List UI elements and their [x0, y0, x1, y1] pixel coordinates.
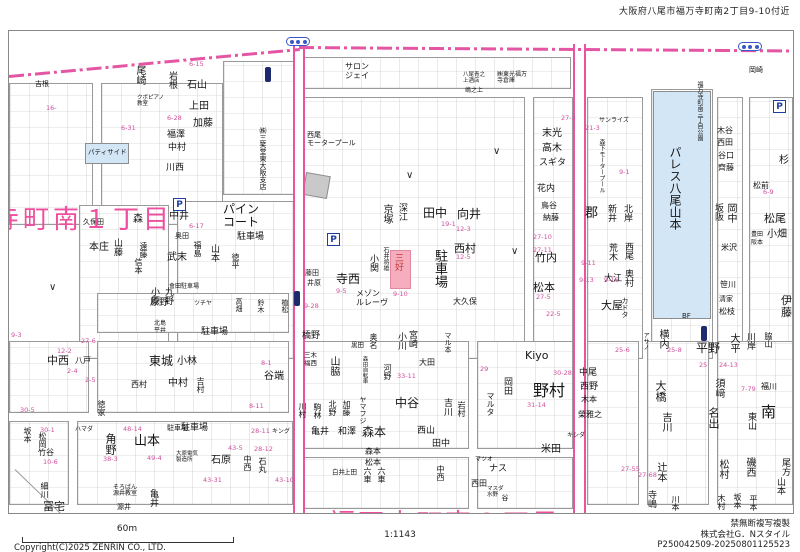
lot-number: 25 [699, 362, 707, 369]
lot-number: 2-5 [85, 377, 96, 384]
basement-floor-label: BF [682, 313, 691, 320]
building-label: 岩根 [167, 71, 176, 89]
building-label: 藤田 [305, 270, 319, 278]
one-way-arrow-icon: ∨ [49, 283, 56, 293]
building-label: 八戸 [75, 357, 91, 366]
signpost-icon [265, 67, 271, 82]
building-label: 大屋 [601, 300, 623, 312]
lot-number: 30-5 [20, 407, 35, 414]
building-label: 竹谷 [38, 449, 54, 458]
building-label: 木谷 [717, 127, 733, 136]
building-label: 大久保 [453, 298, 477, 307]
lot-number: 12-2 [57, 348, 72, 355]
building-label: ヤマフジ [359, 396, 366, 424]
building-label: マルタ [486, 392, 494, 416]
lot-number: 9-28 [304, 303, 319, 310]
building-label: 冨宅 [43, 501, 65, 513]
one-way-arrow-icon: ∨ [511, 247, 518, 257]
district-name-label: 寺町南１丁目 [8, 207, 173, 233]
building-label: 坂阪 [713, 203, 722, 221]
building-label: 遠藤 [139, 242, 147, 258]
building-label: 米田 [541, 445, 561, 456]
building-label: 西田 [717, 139, 733, 148]
building-label: ツチヤ [194, 301, 212, 307]
publisher-block: 禁無断複写複製 株式会社G．Nスタイル P250042509-202508011… [657, 519, 790, 551]
building-label: 松村 [717, 459, 727, 479]
building-label: 山脇 [328, 356, 338, 376]
building-label: 田中 [423, 207, 447, 220]
building-label: 清家 [719, 296, 733, 304]
building-label: 加藤 [193, 119, 213, 130]
building-label: 谷口 [718, 152, 734, 161]
building-label: 上田 [189, 102, 209, 113]
building-label: 笹川 [720, 281, 736, 290]
building-label: マツオ [475, 457, 493, 463]
lot-number: 9-11 [581, 260, 596, 267]
building-label: 平本 [749, 495, 757, 511]
building-label: 本庄 [89, 243, 109, 254]
lot-number: 30-1 [40, 427, 55, 434]
building-label: 中村 [168, 144, 186, 154]
building-label: キング [272, 429, 290, 435]
lot-number: 38-3 [103, 456, 118, 463]
building-label: 植松 [281, 299, 288, 313]
city-block [587, 97, 643, 359]
building-label: 加藤 [342, 400, 350, 416]
lot-number: 8-1 [261, 360, 272, 367]
building-label: 大原電気 製造所 [176, 452, 198, 464]
lot-number: 28-11 [251, 428, 270, 435]
building-label: 駐車場 [237, 233, 264, 243]
lot-number: 8-11 [249, 403, 264, 410]
lot-number: 22-5 [546, 311, 561, 318]
building-label: 駐車場 [167, 425, 188, 433]
building-label: 西山 [417, 427, 435, 437]
building-label: そろばん 源井教室 [113, 485, 137, 498]
building-label: 山藤 [112, 238, 121, 256]
building-label: 山本 [209, 244, 218, 262]
building-label: 鈴木 [257, 299, 264, 313]
lot-number: 43-5 [228, 445, 243, 452]
building-label: 中西 [47, 355, 69, 367]
copyright-notice: Copyright(C)2025 ZENRIN CO., LTD. [14, 543, 166, 552]
building-label: 三好 [393, 253, 402, 271]
traffic-signal-icon [286, 37, 310, 46]
building-label: 駒林 [313, 403, 321, 419]
building-label: ハマダ [75, 427, 93, 433]
building-label: 阪本 [751, 240, 763, 246]
building-label: アサノ [642, 332, 648, 350]
lot-number: 27-11 [533, 247, 552, 254]
building-label: 平井 [154, 328, 166, 334]
building-label: 米沢 [721, 244, 737, 253]
building-label: マル本 [444, 332, 451, 353]
building-label: 森田自転車 [361, 356, 367, 384]
city-block [717, 97, 743, 359]
building-label: 奥村 [623, 269, 632, 287]
company-name: 株式会社G．Nスタイル [657, 530, 790, 541]
city-boundary-line [299, 46, 794, 52]
lot-number: 12-5 [456, 254, 471, 261]
building-label: 石原 [211, 456, 231, 467]
signpost-icon [294, 291, 300, 306]
building-label: 脇山 [764, 332, 772, 348]
building-label: クボピアノ 教室 [137, 96, 164, 108]
building-label: 東山 [746, 412, 755, 430]
building-label: 郡 [585, 207, 598, 221]
building-label: 磯西 [744, 457, 754, 477]
building-label: 西尾 [623, 242, 632, 260]
building-label: 源井 [117, 504, 131, 512]
lot-number: 27-6 [81, 338, 96, 345]
building-label: 北岸 [622, 204, 631, 222]
building-label: 岩村 [457, 401, 465, 417]
building-label: 杉 [779, 156, 789, 167]
building-label: 西野 [580, 383, 598, 393]
building-label: 岡崎 [749, 67, 763, 75]
building-label: 宮崎 [407, 330, 416, 348]
building-label: 三木 [304, 352, 317, 359]
building-label: 豊田 [751, 232, 763, 238]
city-block [587, 341, 639, 505]
lot-number: 10-6 [43, 459, 58, 466]
lot-number: 6-28 [167, 115, 182, 122]
lot-number: 27-3 [561, 115, 576, 122]
one-way-arrow-icon: ∨ [493, 147, 500, 157]
building-label: 松岡 [38, 432, 46, 448]
building-label: 森本 [365, 448, 381, 457]
building-label: 川本 [671, 495, 679, 511]
lot-number: 9-5 [336, 288, 347, 295]
building-label: 大平 [728, 333, 738, 353]
building-label: 小川 [396, 332, 405, 350]
building-label: パレス八尾山本 [669, 146, 681, 230]
district-name-label: 福万寺町南２丁目 [329, 511, 561, 514]
gray-building [302, 172, 331, 199]
building-label: 小関 [368, 254, 377, 272]
building-label: パイン コート [223, 203, 259, 229]
building-label: 須﨑 [713, 378, 723, 398]
building-label: パティサイド [88, 149, 127, 156]
parking-icon: P [327, 233, 340, 246]
building-label: 末光 [542, 129, 562, 140]
building-label: キシダ [567, 433, 585, 439]
building-label: 齊藤 [718, 164, 734, 173]
traffic-signal-icon [738, 42, 762, 51]
city-block [303, 57, 571, 89]
building-label: 坂本 [733, 493, 741, 509]
building-label: ㈱三笑堂東大阪支店 [259, 127, 266, 190]
building-label: 木村 [717, 494, 725, 510]
building-label: 中谷 [395, 397, 419, 410]
building-label: 岡田 [502, 377, 511, 395]
building-label: 吉根 [35, 81, 49, 89]
building-label: 石丸 [258, 457, 266, 473]
building-label: 八尾青之 上酒店 [463, 73, 485, 85]
building-label: 高畑 [235, 298, 242, 312]
lot-number: 28-12 [254, 446, 273, 453]
lot-number: 9-13 [579, 277, 594, 284]
map-canvas[interactable]: 吉根尾崎岩根石山上田加藤福澤中村川西クボピアノ 教室パティサイド久保田本庄山藤森… [8, 30, 794, 514]
lot-number: 9-10 [393, 291, 408, 298]
building-label: 西村 [131, 381, 147, 390]
building-label: 嶋之上 [465, 88, 483, 94]
building-label: 石井将雄 [382, 247, 388, 271]
lot-number: 7-79 [741, 386, 756, 393]
building-label: 尾崎 [134, 65, 144, 85]
lot-number: 16- [46, 105, 57, 112]
building-label: メゾン ルレーヴ [356, 290, 388, 307]
lot-number: 31-14 [527, 402, 546, 409]
building-label: 中尾 [579, 369, 597, 379]
building-label: 福西 [304, 360, 317, 367]
building-label: 松枝 [719, 308, 735, 317]
building-label: ナス [489, 465, 507, 475]
lot-number: 49-4 [147, 455, 162, 462]
building-label: スギタ [539, 159, 566, 169]
building-label: 森本 [362, 426, 386, 439]
parking-icon: P [173, 198, 186, 211]
building-label: 北野 [328, 400, 336, 416]
building-label: 京塚 [381, 204, 391, 224]
lot-number: 33-11 [397, 373, 416, 380]
building-label: 向井 [457, 208, 481, 221]
building-label: 木本 [581, 396, 597, 405]
building-label: 鳥谷 [541, 202, 557, 211]
lot-number: 6-17 [189, 223, 204, 230]
building-label: 東城 [149, 355, 173, 368]
lot-number: 6-9 [763, 189, 774, 196]
building-label: 細川 [40, 482, 48, 498]
lot-number: 25-6 [615, 347, 630, 354]
building-label: 納藤 [543, 214, 559, 223]
building-label: 小林 [177, 357, 197, 368]
building-label: 吉川 [442, 398, 451, 416]
lot-number: 27-68 [638, 472, 657, 479]
building-label: 野村 [533, 382, 565, 399]
lot-number: 2-4 [67, 368, 78, 375]
building-label: 福万寺町南三丁目公園 [696, 81, 702, 141]
building-label: 松尾 [764, 213, 786, 225]
lot-number: 6-15 [189, 61, 204, 68]
building-label: サロン ジェイ [345, 63, 369, 80]
one-way-arrow-icon: ∨ [406, 171, 413, 181]
lot-number: 9-16 [604, 277, 619, 284]
lot-number: 30-28 [553, 370, 572, 377]
building-label: 森下モータープール [598, 139, 604, 193]
signpost-icon [701, 326, 707, 341]
building-label: 中村 [168, 379, 188, 390]
building-label: 石山 [187, 81, 207, 92]
building-label: 六車 [363, 467, 371, 483]
building-label: 深江 [397, 203, 406, 221]
building-label: 上田 [344, 469, 357, 476]
zenrin-map-page: 大阪府八尾市福万寺町南2丁目9-10付近 吉根尾崎岩根石山上田加藤福澤中村川西ク… [0, 0, 800, 552]
lot-number: 12-3 [456, 226, 471, 233]
lot-number: 9-1 [619, 169, 630, 176]
building-label: 名出 [708, 407, 719, 429]
building-label: Kiyo [525, 350, 549, 362]
lot-number: 9-3 [11, 332, 22, 339]
building-label: 荒木 [607, 243, 616, 261]
building-label: 岡中 [725, 203, 735, 223]
building-label: 和澤 [338, 428, 356, 438]
lot-number: 29 [480, 366, 488, 373]
building-label: 尾方 [780, 458, 789, 476]
serial-code: P250042509-20250801125523 [657, 540, 790, 551]
building-label: 新井 [606, 204, 615, 222]
building-label: 田中 [432, 440, 450, 450]
building-label: 伊藤 [781, 295, 793, 319]
lot-number: 27-5 [536, 294, 551, 301]
building-label: カドタ [621, 297, 628, 318]
lot-number: 24-13 [719, 362, 738, 369]
lot-number: 48-14 [123, 426, 142, 433]
building-label: 徳家 [97, 400, 105, 416]
building-label: 福川 [761, 383, 777, 392]
building-label: 駐車場 [433, 249, 446, 288]
building-label: 會田駐車場 [169, 284, 199, 290]
building-label: 大田 [419, 359, 435, 368]
lot-number: 25-8 [667, 347, 682, 354]
building-label: サンライズ [599, 118, 629, 124]
building-label: 花内 [537, 185, 555, 195]
map-address-title: 大阪府八尾市福万寺町南2丁目9-10付近 [619, 4, 790, 17]
building-label: 寺西 [336, 273, 360, 286]
lot-number: 6-31 [121, 125, 136, 132]
building-label: 平野 [696, 342, 720, 355]
building-label: 西田 [471, 480, 487, 489]
building-label: 信本 [134, 258, 142, 274]
building-label: 福島 [193, 241, 201, 257]
lot-number: 21-3 [585, 125, 600, 132]
building-label: 山本 [775, 477, 784, 495]
lot-number: 19-1 [441, 221, 456, 228]
main-road-vertical [293, 41, 305, 513]
building-label: 川村 [298, 402, 306, 418]
building-label: 六車 [377, 467, 385, 483]
building-label: 榮雅之 [578, 411, 602, 420]
building-label: 坂本 [23, 427, 31, 443]
building-label: 黒田 [351, 342, 364, 349]
building-label: 吉村 [196, 377, 204, 393]
building-label: 寺嶋 [646, 490, 655, 508]
lot-number: 27-10 [533, 234, 552, 241]
building-label: 原野 [150, 299, 168, 309]
building-label: 谷端 [264, 372, 284, 383]
building-label: 横内 [657, 329, 667, 349]
building-label: 山本 [134, 435, 160, 449]
building-label: 奥名 [369, 333, 377, 349]
building-label: 吉川 [660, 412, 670, 432]
lot-number: 43-10 [275, 477, 294, 484]
building-label: ㈱東光福万 寺倉庫 [497, 72, 527, 85]
building-label: 亀井 [148, 489, 157, 507]
building-label: 高木 [542, 144, 562, 155]
building-label: 川岸 [745, 332, 754, 350]
building-label: 駐車場 [201, 328, 228, 338]
city-block [9, 341, 89, 413]
building-label: 武末 [167, 253, 187, 264]
building-label: 福澤 [167, 131, 185, 141]
rights-notice: 禁無断複写複製 [657, 519, 790, 530]
building-label: 小畑 [767, 230, 787, 241]
building-label: 大橋 [655, 380, 666, 402]
parking-icon: P [773, 100, 786, 113]
building-label: 中西 [243, 455, 251, 471]
building-label: 谷 [501, 494, 508, 501]
building-label: 橋野 [302, 332, 320, 342]
building-label: 亀井 [311, 428, 329, 438]
city-block [749, 97, 793, 359]
lot-number: 43-31 [203, 477, 222, 484]
building-label: 河野 [383, 364, 391, 380]
building-label: 中西 [436, 465, 444, 481]
building-label: 南 [761, 404, 776, 420]
building-label: 徳平 [231, 253, 239, 269]
building-label: 西尾 モータープール [307, 132, 356, 147]
building-label: 角野 [105, 433, 116, 455]
building-label: 奥田 [175, 233, 189, 241]
building-label: 井原 [307, 280, 321, 288]
building-label: 川西 [166, 164, 184, 174]
